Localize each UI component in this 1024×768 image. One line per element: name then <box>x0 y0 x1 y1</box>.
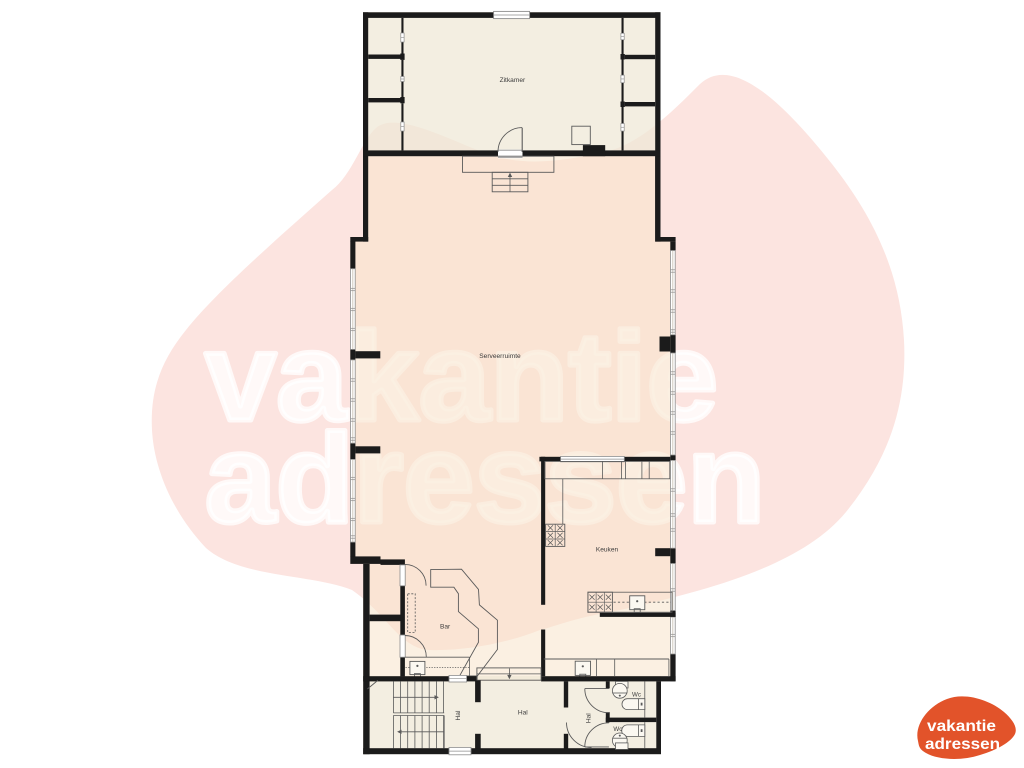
svg-text:Hal: Hal <box>455 710 462 720</box>
svg-text:vakantie: vakantie <box>927 718 996 735</box>
svg-text:Wc: Wc <box>613 726 622 733</box>
svg-text:Keuken: Keuken <box>596 547 619 554</box>
svg-text:Zitkamer: Zitkamer <box>500 77 526 84</box>
svg-text:Hal: Hal <box>518 710 528 717</box>
svg-text:Bar: Bar <box>440 623 451 630</box>
svg-text:adressen: adressen <box>925 736 1000 753</box>
svg-text:Serveerruimte: Serveerruimte <box>479 353 521 360</box>
svg-text:Hal: Hal <box>585 713 592 723</box>
svg-text:Wc: Wc <box>632 692 641 699</box>
